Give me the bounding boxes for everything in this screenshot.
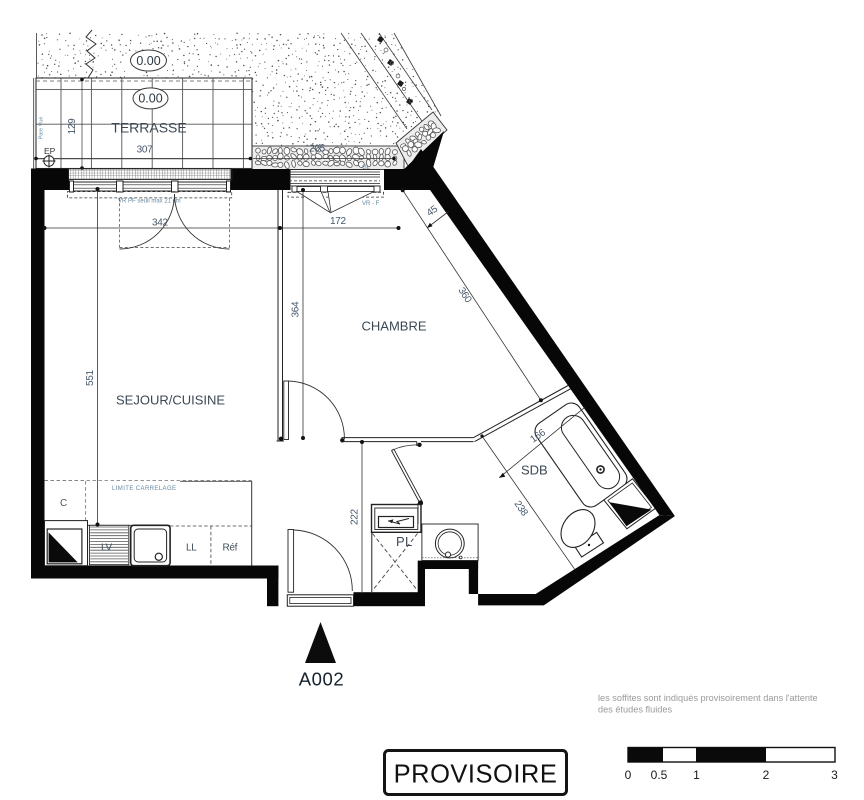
svg-text:GL: GL bbox=[362, 165, 371, 171]
svg-text:364: 364 bbox=[291, 301, 302, 318]
svg-text:0.5: 0.5 bbox=[651, 768, 668, 782]
svg-text:C: C bbox=[60, 498, 67, 509]
svg-text:SDB: SDB bbox=[521, 463, 548, 478]
svg-text:SEJOUR/CUISINE: SEJOUR/CUISINE bbox=[116, 393, 225, 408]
svg-text:Pare Vue: Pare Vue bbox=[39, 117, 45, 140]
svg-text:2: 2 bbox=[763, 768, 770, 782]
svg-text:222: 222 bbox=[350, 508, 361, 525]
svg-text:551: 551 bbox=[85, 369, 96, 386]
svg-text:PL: PL bbox=[396, 534, 413, 549]
svg-text:LIMITE CARRELAGE: LIMITE CARRELAGE bbox=[112, 486, 176, 492]
svg-text:LL: LL bbox=[186, 543, 197, 554]
svg-text:des études fluides: des études fluides bbox=[598, 705, 672, 715]
svg-text:EP: EP bbox=[44, 146, 56, 156]
svg-text:0.00: 0.00 bbox=[138, 92, 162, 106]
svg-text:342: 342 bbox=[152, 218, 169, 229]
svg-text:les soffites sont indiqués pro: les soffites sont indiqués provisoiremen… bbox=[598, 693, 818, 703]
svg-text:129: 129 bbox=[67, 118, 78, 135]
svg-text:3: 3 bbox=[831, 768, 838, 782]
svg-text:A002: A002 bbox=[299, 669, 345, 690]
svg-text:VR - F: VR - F bbox=[362, 201, 380, 207]
svg-text:0.00: 0.00 bbox=[136, 54, 160, 68]
svg-text:LV: LV bbox=[101, 543, 113, 554]
svg-text:205: 205 bbox=[309, 144, 326, 155]
svg-text:PROVISOIRE: PROVISOIRE bbox=[394, 761, 558, 789]
svg-text:CHAMBRE: CHAMBRE bbox=[362, 319, 427, 334]
svg-text:172: 172 bbox=[330, 216, 347, 227]
svg-text:VR PF seuil max 21 cm: VR PF seuil max 21 cm bbox=[118, 199, 181, 205]
svg-text:TERRASSE: TERRASSE bbox=[111, 120, 186, 136]
svg-text:0: 0 bbox=[625, 768, 632, 782]
svg-text:307: 307 bbox=[137, 145, 154, 156]
svg-text:1: 1 bbox=[693, 768, 700, 782]
svg-text:Réf: Réf bbox=[223, 543, 238, 554]
